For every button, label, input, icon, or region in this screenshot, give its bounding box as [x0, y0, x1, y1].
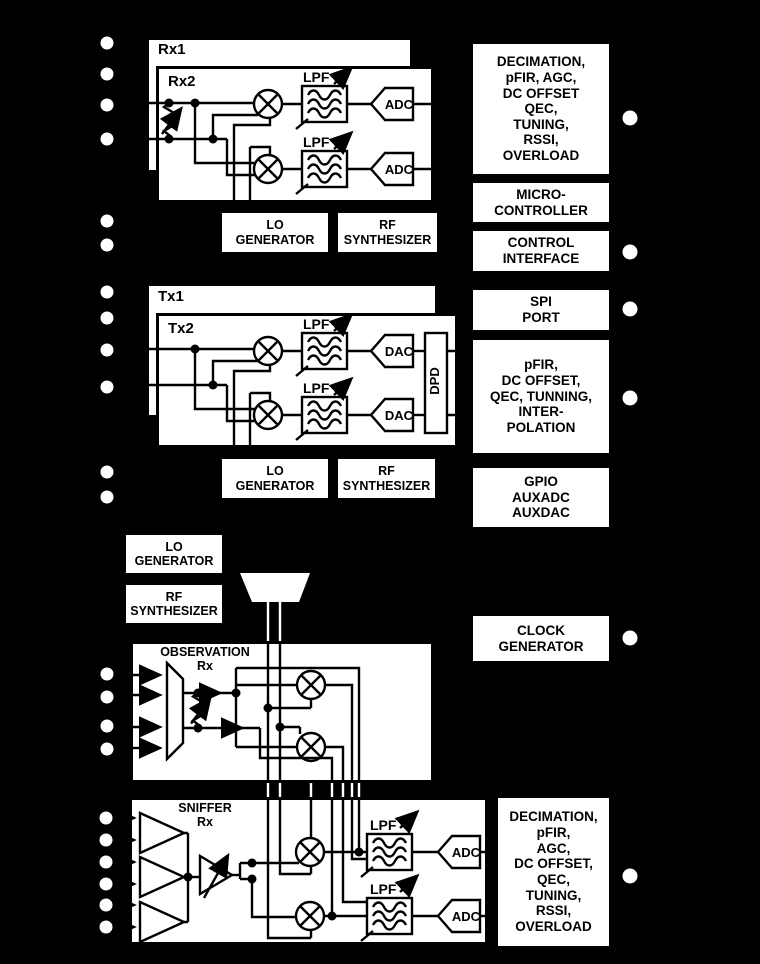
io-pad [101, 37, 114, 50]
rx2-label: Rx2 [168, 73, 196, 90]
io-pad [101, 466, 114, 479]
io-pad [101, 239, 114, 252]
lo-generator-aux-label: LO GENERATOR [135, 540, 214, 569]
io-pad [623, 869, 638, 884]
io-pad [623, 391, 638, 406]
rf-synthesizer-aux-box: RF SYNTHESIZER [126, 585, 222, 623]
io-pad [101, 312, 114, 325]
lo-generator-tx-label: LO GENERATOR [236, 464, 315, 493]
tx2-label: Tx2 [168, 320, 194, 337]
rf-synthesizer-rx-label: RF SYNTHESIZER [344, 218, 432, 247]
lo-generator-rx-label: LO GENERATOR [236, 218, 315, 247]
io-pad [100, 878, 113, 891]
rf-synthesizer-aux-label: RF SYNTHESIZER [130, 590, 218, 619]
rf-synthesizer-rx-box: RF SYNTHESIZER [338, 213, 437, 252]
io-pad [101, 668, 114, 681]
tx2-box [156, 313, 458, 448]
io-pads-left [100, 37, 114, 934]
io-pad [623, 631, 638, 646]
rx2-box [156, 66, 434, 203]
io-pad [101, 68, 114, 81]
gpio-block: GPIO AUXADC AUXDAC [473, 468, 609, 527]
io-pad [101, 286, 114, 299]
lo-generator-rx-box: LO GENERATOR [222, 213, 328, 252]
rx-dsp-block: DECIMATION, pFIR, AGC, DC OFFSET QEC, TU… [473, 44, 609, 174]
rf-synthesizer-tx-box: RF SYNTHESIZER [338, 459, 435, 498]
transceiver-block-diagram: LO GENERATOR RF SYNTHESIZER LO GENERATOR… [0, 0, 760, 964]
io-pad [101, 691, 114, 704]
rx-dsp-label: DECIMATION, pFIR, AGC, DC OFFSET QEC, TU… [497, 54, 585, 164]
io-pad [101, 133, 114, 146]
control-interface-label: CONTROL INTERFACE [503, 235, 580, 266]
io-pad [101, 99, 114, 112]
lo-generator-aux-box: LO GENERATOR [126, 535, 222, 573]
clock-generator-block: CLOCK GENERATOR [473, 616, 609, 661]
io-pad [101, 344, 114, 357]
io-pad [100, 856, 113, 869]
rf-synthesizer-tx-label: RF SYNTHESIZER [343, 464, 431, 493]
io-pad [623, 245, 638, 260]
observation-rx-label: OBSERVATION Rx [140, 645, 270, 674]
io-pad [100, 899, 113, 912]
io-pad [101, 720, 114, 733]
io-pad [623, 302, 638, 317]
microcontroller-label: MICRO- CONTROLLER [494, 187, 588, 218]
sniffer-rx-label: SNIFFER Rx [150, 801, 260, 830]
io-pad [101, 491, 114, 504]
io-pads-right [623, 111, 638, 884]
io-pad [100, 812, 113, 825]
spi-port-label: SPI PORT [522, 294, 560, 325]
tx-dsp-block: pFIR, DC OFFSET, QEC, TUNNING, INTER- PO… [473, 340, 609, 453]
io-pad [101, 381, 114, 394]
io-pad [101, 215, 114, 228]
gpio-label: GPIO AUXADC AUXDAC [512, 474, 570, 521]
spi-port-block: SPI PORT [473, 290, 609, 330]
tx1-label: Tx1 [158, 288, 184, 305]
lo-mux-trapezoid-icon [240, 573, 310, 602]
io-pad [623, 111, 638, 126]
io-pad [100, 921, 113, 934]
sniffer-dsp-block: DECIMATION, pFIR, AGC, DC OFFSET, QEC, T… [498, 798, 609, 946]
control-interface-block: CONTROL INTERFACE [473, 231, 609, 271]
microcontroller-block: MICRO- CONTROLLER [473, 183, 609, 222]
lo-generator-tx-box: LO GENERATOR [222, 459, 328, 498]
sniffer-dsp-label: DECIMATION, pFIR, AGC, DC OFFSET, QEC, T… [509, 809, 597, 934]
io-pad [101, 743, 114, 756]
tx-dsp-label: pFIR, DC OFFSET, QEC, TUNNING, INTER- PO… [490, 357, 592, 435]
rx1-label: Rx1 [158, 41, 186, 58]
clock-generator-label: CLOCK GENERATOR [498, 623, 583, 654]
io-pad [100, 834, 113, 847]
